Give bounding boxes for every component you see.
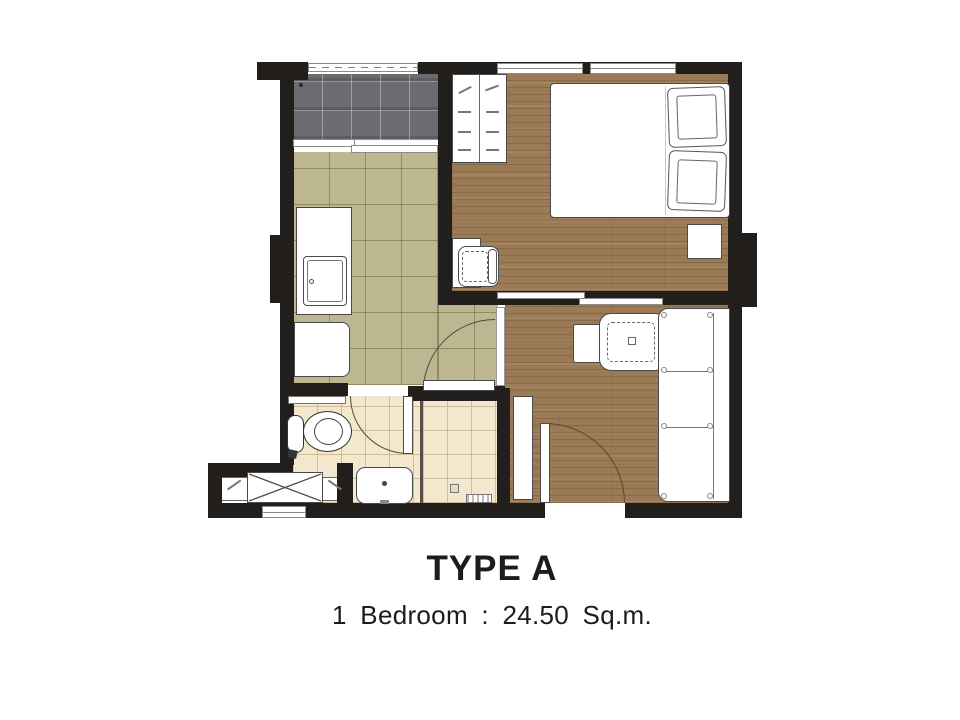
wall-left-pier bbox=[270, 235, 294, 303]
pillow-inner bbox=[676, 94, 718, 139]
louver-vent bbox=[262, 506, 306, 518]
sofa bbox=[658, 308, 730, 502]
bedroom-sliding-partition-pane-2 bbox=[579, 298, 663, 305]
kitchen-base-cabinet bbox=[294, 322, 350, 377]
bedside-table bbox=[687, 224, 722, 259]
shower-floor bbox=[423, 400, 497, 503]
floor-drain-icon bbox=[287, 449, 297, 459]
wall-right-pier bbox=[742, 233, 757, 307]
hanger-dash bbox=[486, 131, 499, 133]
shower-mixer-icon bbox=[450, 484, 459, 493]
pillow-inner bbox=[676, 159, 718, 204]
sofa-cushion-line bbox=[662, 427, 714, 428]
balcony-sliding-door-pane-1 bbox=[293, 139, 355, 147]
sofa-cushion-line bbox=[662, 371, 714, 372]
sofa-stud bbox=[707, 312, 713, 318]
basin-faucet-icon bbox=[382, 481, 387, 486]
balcony-sliding-door-pane-2 bbox=[351, 145, 438, 153]
hanger-dash bbox=[485, 85, 499, 92]
faucet-icon bbox=[309, 279, 314, 284]
shower-grate bbox=[466, 494, 492, 503]
sofa-stud bbox=[661, 312, 667, 318]
hanger-dash bbox=[458, 131, 471, 133]
bedroom-window-1 bbox=[497, 63, 583, 74]
plan-title: TYPE A bbox=[24, 550, 960, 588]
desk-chair-seat bbox=[462, 251, 488, 282]
kitchen-sink bbox=[303, 256, 347, 306]
bathroom-shelf bbox=[288, 396, 346, 404]
balcony-floor bbox=[293, 74, 438, 140]
caption-block: TYPE A 1 Bedroom : 24.50 Sq.m. bbox=[24, 550, 960, 631]
lounge-chair bbox=[599, 313, 667, 371]
basin-tap-icon bbox=[380, 500, 389, 504]
entry-door-leaf bbox=[540, 423, 550, 503]
wall-shower-right bbox=[497, 388, 510, 503]
hanger-dash bbox=[458, 111, 471, 113]
sofa-stud bbox=[661, 493, 667, 499]
hanger-dash bbox=[486, 149, 499, 151]
bathroom-door-leaf bbox=[403, 396, 413, 454]
hanger-dash bbox=[458, 86, 471, 94]
floor-plan-sheet: TYPE A 1 Bedroom : 24.50 Sq.m. bbox=[0, 0, 960, 720]
wall-bottom-right bbox=[625, 503, 742, 518]
sofa-stud bbox=[707, 493, 713, 499]
toilet-bowl bbox=[303, 411, 352, 452]
hanger-dash bbox=[458, 149, 471, 151]
plan-subtitle: 1 Bedroom : 24.50 Sq.m. bbox=[24, 600, 960, 631]
sofa-back-line bbox=[713, 313, 714, 499]
bed-sheet-fold bbox=[665, 86, 666, 215]
wall-bottom-left bbox=[208, 503, 545, 518]
wall-bathroom-top-left bbox=[280, 383, 348, 396]
wall-bedroom-left bbox=[438, 62, 452, 305]
hall-door-leaf bbox=[423, 380, 495, 391]
shower-glass-divider bbox=[420, 400, 423, 503]
shoe-cabinet bbox=[513, 396, 533, 500]
toilet-bowl-inner bbox=[314, 418, 343, 445]
condenser-x-icon bbox=[248, 473, 322, 502]
balcony-drain bbox=[299, 83, 303, 87]
wardrobe bbox=[452, 74, 507, 163]
hall-pocket-door bbox=[496, 307, 505, 386]
sofa-stud bbox=[661, 367, 667, 373]
balcony-railing bbox=[308, 63, 418, 72]
wardrobe-divider bbox=[479, 75, 480, 162]
sofa-stud bbox=[707, 367, 713, 373]
bedroom-window-2 bbox=[590, 63, 676, 74]
bedroom-sliding-partition-pane-1 bbox=[497, 292, 585, 299]
ottoman bbox=[573, 324, 601, 363]
lounge-chair-button bbox=[628, 337, 636, 345]
washbasin bbox=[356, 467, 413, 504]
sofa-stud bbox=[707, 423, 713, 429]
sofa-stud bbox=[661, 423, 667, 429]
desk-chair bbox=[458, 246, 499, 287]
ac-condenser-unit bbox=[247, 472, 323, 503]
pillow bbox=[667, 86, 727, 148]
toilet-tank bbox=[287, 415, 304, 453]
wall-right bbox=[728, 62, 742, 518]
desk-chair-back bbox=[488, 249, 497, 284]
hanger-dash bbox=[486, 111, 499, 113]
pillow bbox=[667, 150, 727, 212]
